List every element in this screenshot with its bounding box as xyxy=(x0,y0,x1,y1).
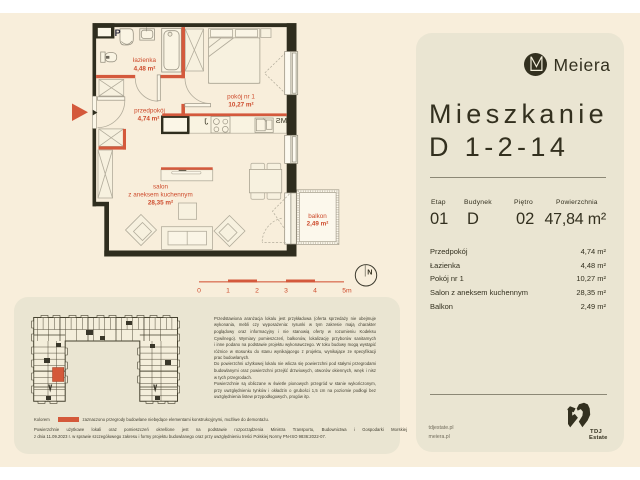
svg-text:4: 4 xyxy=(313,288,317,295)
svg-text:2,49 m²: 2,49 m² xyxy=(307,221,329,228)
svg-text:łazienka: łazienka xyxy=(133,57,157,64)
svg-text:P: P xyxy=(115,28,121,38)
svg-text:4,48 m²: 4,48 m² xyxy=(134,65,156,72)
svg-text:pokój nr 1: pokój nr 1 xyxy=(227,94,255,101)
svg-text:balkon: balkon xyxy=(308,213,327,220)
svg-text:przedpokój: przedpokój xyxy=(134,108,165,115)
svg-text:5m: 5m xyxy=(342,288,352,295)
svg-text:1: 1 xyxy=(226,288,230,295)
svg-text:28,35 m²: 28,35 m² xyxy=(148,200,173,207)
svg-text:10,27 m²: 10,27 m² xyxy=(228,102,253,109)
svg-text:3: 3 xyxy=(284,288,288,295)
svg-text:4,74 m²: 4,74 m² xyxy=(138,116,160,123)
svg-text:z aneksem kuchennym: z aneksem kuchennym xyxy=(128,192,192,199)
svg-text:J: J xyxy=(204,117,208,126)
svg-text:0: 0 xyxy=(197,288,201,295)
svg-text:2: 2 xyxy=(255,288,259,295)
svg-text:MS: MS xyxy=(276,116,287,125)
svg-text:salon: salon xyxy=(153,184,169,191)
svg-text:N: N xyxy=(367,267,372,276)
